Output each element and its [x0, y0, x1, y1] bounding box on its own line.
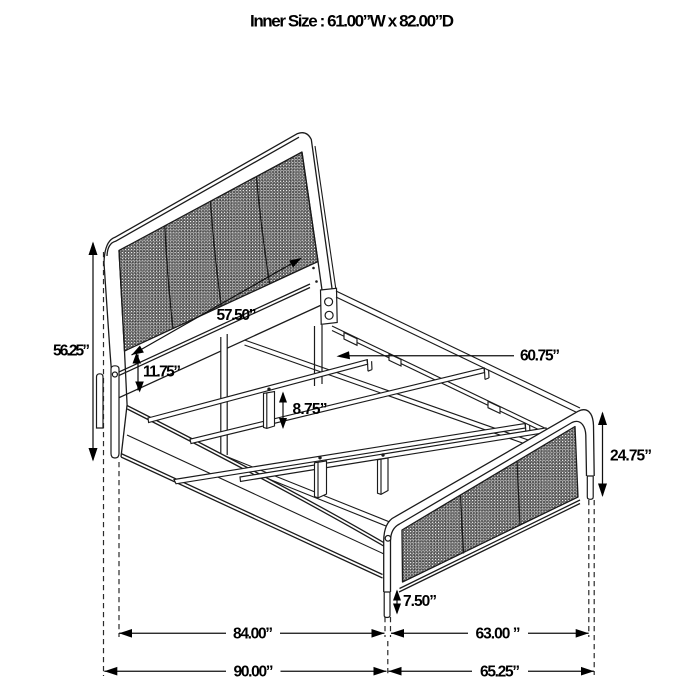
- svg-text:11.75”: 11.75”: [143, 364, 181, 381]
- svg-text:65.25”: 65.25”: [480, 664, 520, 681]
- svg-text:60.75”: 60.75”: [520, 348, 560, 365]
- svg-text:8.75”: 8.75”: [293, 401, 328, 418]
- svg-text:57.50”: 57.50”: [217, 307, 257, 324]
- svg-text:56.25”: 56.25”: [53, 343, 90, 360]
- svg-text:Inner Size : 61.00”W x 82.00”D: Inner Size : 61.00”W x 82.00”D: [250, 12, 454, 31]
- svg-text:7.50”: 7.50”: [403, 593, 437, 610]
- svg-text:24.75”: 24.75”: [610, 448, 652, 465]
- svg-text:84.00”: 84.00”: [233, 626, 273, 643]
- svg-text:90.00”: 90.00”: [234, 663, 274, 680]
- svg-text:63.00 ”: 63.00 ”: [476, 626, 521, 643]
